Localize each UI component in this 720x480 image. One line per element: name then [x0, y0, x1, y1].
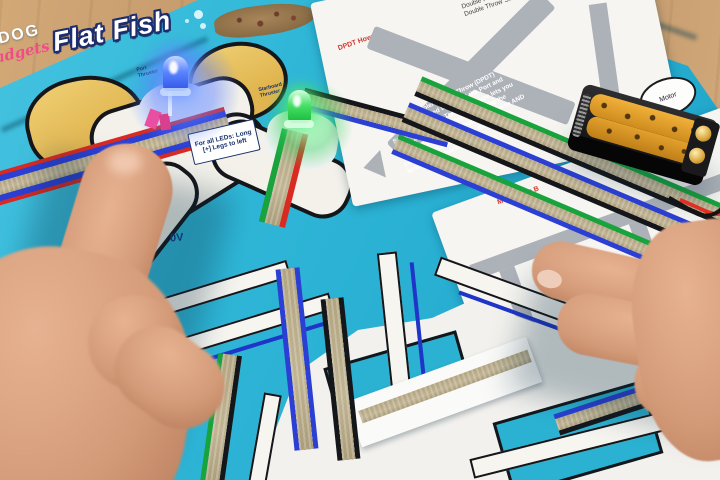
bubble-dot: [200, 23, 206, 29]
blue-led-highlight: [169, 61, 178, 74]
bubble-dot: [185, 19, 189, 23]
left-fingertip-highlight: [108, 150, 142, 174]
green-led-highlight: [293, 95, 301, 107]
photo-scene: DOG gadgets Flat Fish DPDT How To Double…: [0, 0, 720, 480]
bubble-dot: [194, 10, 203, 19]
green-led: [288, 90, 311, 123]
green-led-flange: [284, 120, 314, 128]
dpdt-arrowhead: [361, 150, 386, 182]
blue-led-flange: [160, 88, 191, 96]
